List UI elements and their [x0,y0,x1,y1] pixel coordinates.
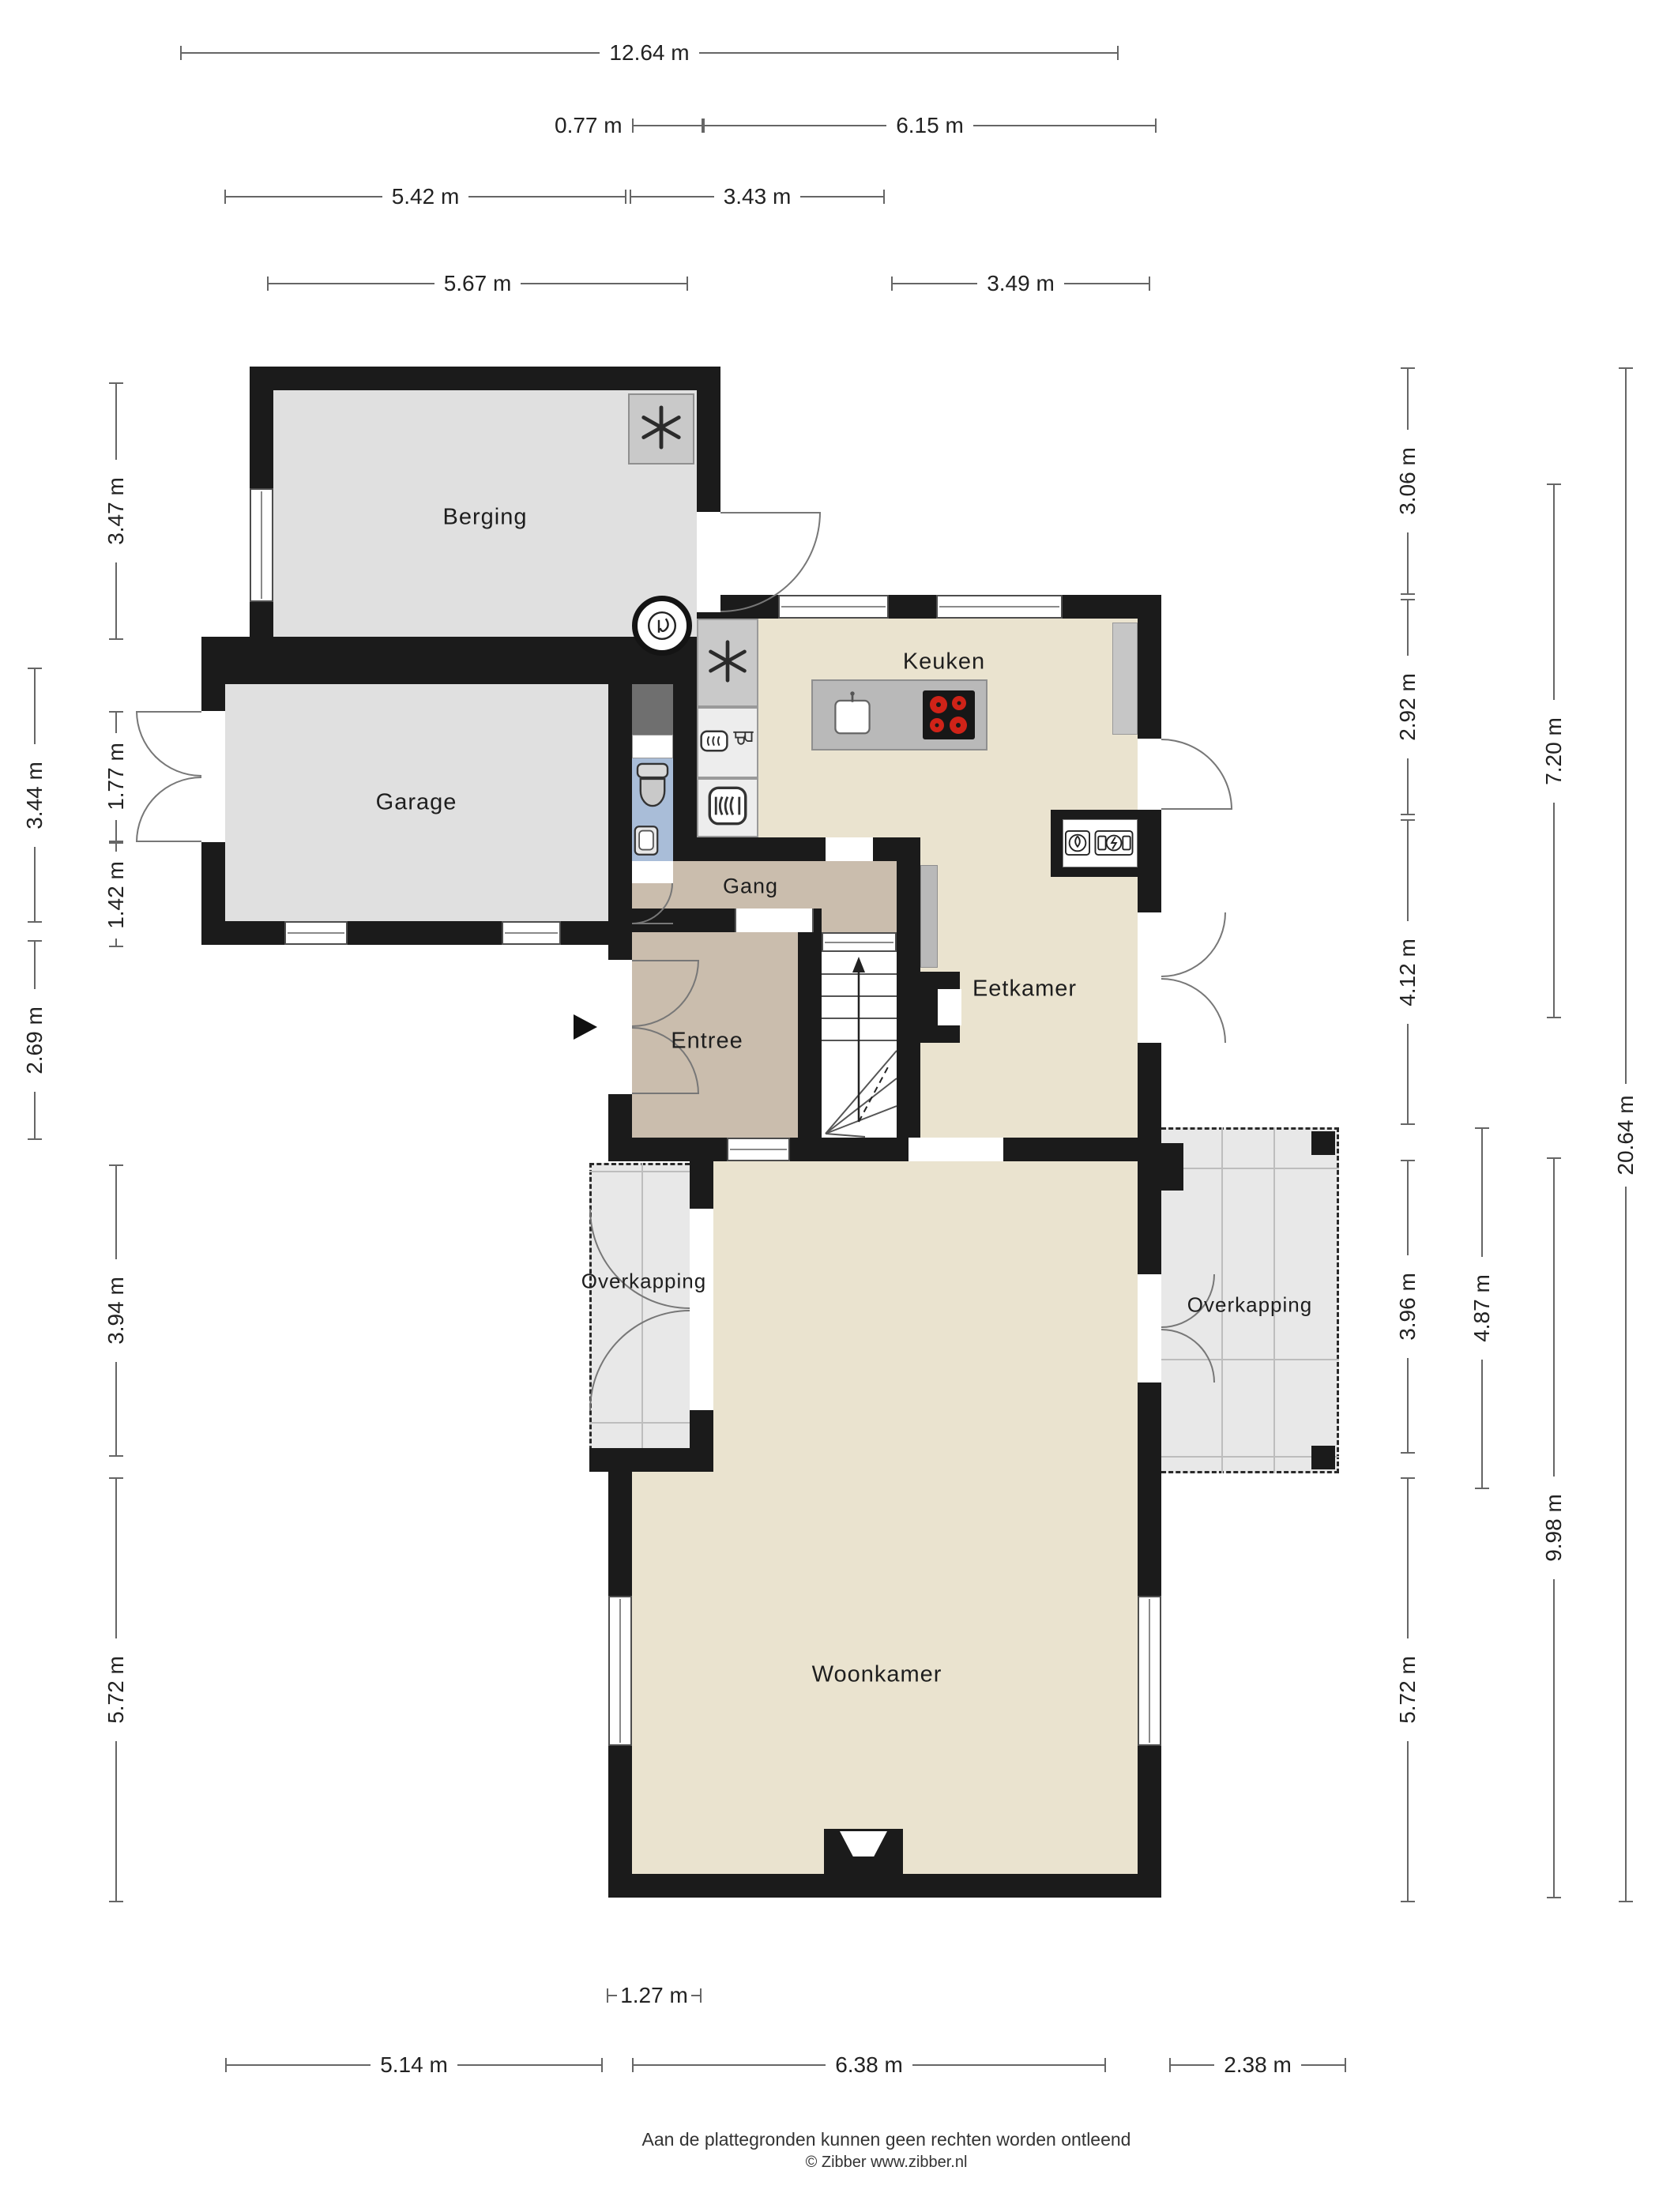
canopy-grid-line [1161,1168,1339,1169]
door-leaf [632,923,673,924]
wall [673,637,697,861]
staircase [822,952,897,1142]
floor-woonkamer-lower-left [632,1472,713,1874]
wall [250,367,720,390]
window-keuken-top-1 [778,595,889,619]
dimension-left-394: 3.94 m [102,1164,130,1457]
meter-cupboard-wall [1051,810,1161,819]
window-entree-bottom [727,1138,790,1161]
dimension-bottom-2a: 5.14 m [225,2052,603,2078]
dimension-label: 4.87 m [1469,1274,1495,1342]
dimension-top-3b: 3.43 m [630,184,885,209]
dimension-top-4a: 5.67 m [267,271,688,296]
door-opening-keuken [1138,739,1161,810]
kitchen-counter-right [1112,623,1138,735]
room-label-eetkamer: Eetkamer [972,976,1077,1003]
door-leaf [136,841,201,842]
dimension-label: 2.92 m [1395,673,1420,741]
dimension-right-306: 3.06 m [1394,367,1422,595]
dimension-label: 12.64 m [600,40,698,66]
dimension-label: 0.77 m [545,113,632,138]
dimension-label: 9.98 m [1541,1494,1567,1562]
wall-cupboard [920,865,938,968]
dimension-label: 1.42 m [103,861,129,929]
fireplace-inset [938,989,961,1025]
dimension-bottom-2c: 2.38 m [1169,2052,1346,2078]
door-opening-toilet [632,861,673,883]
dimension-right-720: 7.20 m [1540,483,1568,1018]
wall [589,1448,713,1472]
dimension-left-269: 2.69 m [21,940,49,1140]
wall [697,837,920,861]
dimension-top-2a: 0.77 m [545,113,703,138]
wall [897,837,920,1161]
dimension-right-2064: 20.64 m [1612,367,1640,1902]
dimension-right-998: 9.98 m [1540,1157,1568,1898]
dimension-left-344: 3.44 m [21,668,49,923]
door-arc [136,777,201,842]
door-arc [1161,739,1232,810]
wall [798,932,822,1161]
wall [608,1874,1161,1898]
dimension-label: 3.49 m [977,271,1064,296]
microwave-icon [700,730,728,756]
canopy-post [1311,1131,1335,1155]
door-opening-overkapping-left [690,1209,713,1410]
room-label-woonkamer: Woonkamer [812,1662,942,1688]
dimension-left-347: 3.47 m [102,382,130,640]
passage-eetkamer-woonkamer [908,1138,1003,1161]
room-label-overkapping-right: Overkapping [1187,1293,1312,1318]
dimension-top-1: 12.64 m [180,40,1119,66]
door-opening-overkapping-right [1138,1274,1161,1382]
dimension-label: 3.96 m [1395,1273,1420,1341]
door-leaf [632,960,699,961]
dimension-right-292: 2.92 m [1394,599,1422,815]
wall [1138,595,1161,1161]
electric-meter-icon [1093,830,1134,860]
dimension-right-572: 5.72 m [1394,1477,1422,1902]
dimension-label: 3.06 m [1395,447,1420,515]
door-opening-garage [201,711,225,842]
dimension-label: 5.72 m [1395,1656,1420,1724]
door-leaf [136,711,201,713]
door-leaf [720,512,821,513]
kitchen-oven-cell [697,778,758,837]
dimension-label: 5.72 m [103,1656,129,1724]
dimension-label: 3.47 m [103,477,129,545]
dimension-left-142: 1.42 m [102,842,130,947]
dimension-label: 1.27 m [617,1983,691,2008]
wall [201,921,632,945]
dimension-label: 20.64 m [1613,1095,1638,1175]
meter-cupboard-wall [1051,867,1161,877]
door-opening-eetkamer [1138,912,1161,1043]
canopy-grid-line [589,1422,690,1424]
door-opening-berging [697,512,720,612]
kitchen-appliance-cell [697,707,758,778]
dimension-bottom-2b: 6.38 m [632,2052,1106,2078]
dimension-label: 2.69 m [22,1006,47,1074]
room-label-keuken: Keuken [903,649,985,675]
kitchen-vent-cell [697,619,758,707]
dimension-top-4b: 3.49 m [891,271,1150,296]
floor-plan: Berging Garage Keuken Gang Entree Eetkam… [0,0,1659,2212]
window-woonkamer-left [608,1596,632,1746]
dimension-bottom-1: 1.27 m [607,1983,702,2008]
dimension-top-2b: 6.15 m [703,113,1157,138]
room-label-entree: Entree [671,1029,743,1055]
dimension-right-412: 4.12 m [1394,819,1422,1125]
toilet-ledge [632,735,673,758]
footer-line1: Aan de plattegronden kunnen geen rechten… [412,2129,1360,2150]
dimension-label: 1.77 m [103,743,129,811]
floor-woonkamer [713,1161,1138,1874]
canopy-post [1311,1446,1335,1469]
coffee-machine-icon [732,730,755,756]
dimension-top-3a: 5.42 m [224,184,626,209]
room-label-berging: Berging [443,505,528,531]
room-label-garage: Garage [376,790,457,816]
passage-keuken-gang [826,837,873,861]
passage-gang-entree [735,908,814,932]
footer-line2: © Zibber www.zibber.nl [412,2154,1360,2172]
dimension-left-177: 1.77 m [102,711,130,842]
door-leaf [1161,808,1232,810]
ventilation-fan-icon [638,404,684,454]
floor-gang-stairs-access [822,908,897,932]
dimension-label: 6.38 m [826,2052,912,2078]
door-leaf [632,1093,699,1094]
oven-icon [708,786,747,829]
dimension-label: 5.42 m [382,184,469,209]
dimension-label: 5.14 m [371,2052,457,2078]
dimension-label: 7.20 m [1541,717,1567,785]
window-berging-left [250,488,273,602]
stairs-up-arrow-icon [852,957,890,1122]
entrance-arrow-icon [574,1014,597,1040]
dimension-label: 3.94 m [103,1277,129,1345]
door-arc [1161,978,1226,1043]
room-label-gang: Gang [723,875,778,899]
ventilation-fan-icon [705,639,750,687]
toilet-icon [633,762,672,826]
dimension-label: 3.44 m [22,762,47,829]
door-opening-front-door [608,960,632,1094]
door-arc [136,711,201,777]
dimension-label: 2.38 m [1214,2052,1301,2078]
cooktop-icon [923,690,975,743]
duct-shaft [632,684,673,735]
dimension-label: 6.15 m [886,113,973,138]
window-garage-bottom-1 [284,921,348,945]
lamp-meter-icon [1065,830,1090,860]
canopy-grid-line [589,1171,690,1172]
window-keuken-top-2 [936,595,1063,619]
kitchen-sink-icon [831,690,874,743]
washbasin-icon [634,823,659,862]
dimension-label: 3.43 m [714,184,801,209]
dimension-left-572: 5.72 m [102,1477,130,1902]
wall [1161,1143,1183,1191]
dimension-right-396: 3.96 m [1394,1160,1422,1454]
boiler-icon [632,596,692,656]
window-woonkamer-right [1138,1596,1161,1746]
dimension-label: 4.12 m [1395,939,1420,1006]
dimension-right-487: 4.87 m [1468,1127,1496,1489]
footer-disclaimer: Aan de plattegronden kunnen geen rechten… [412,2129,1360,2172]
dimension-label: 5.67 m [434,271,521,296]
door-arc [1161,912,1226,977]
window-garage-bottom-2 [502,921,561,945]
room-label-overkapping-left: Overkapping [581,1270,706,1294]
window-stairs-top [822,932,897,952]
wall [1138,1138,1161,1898]
ventilation-unit [628,393,694,465]
